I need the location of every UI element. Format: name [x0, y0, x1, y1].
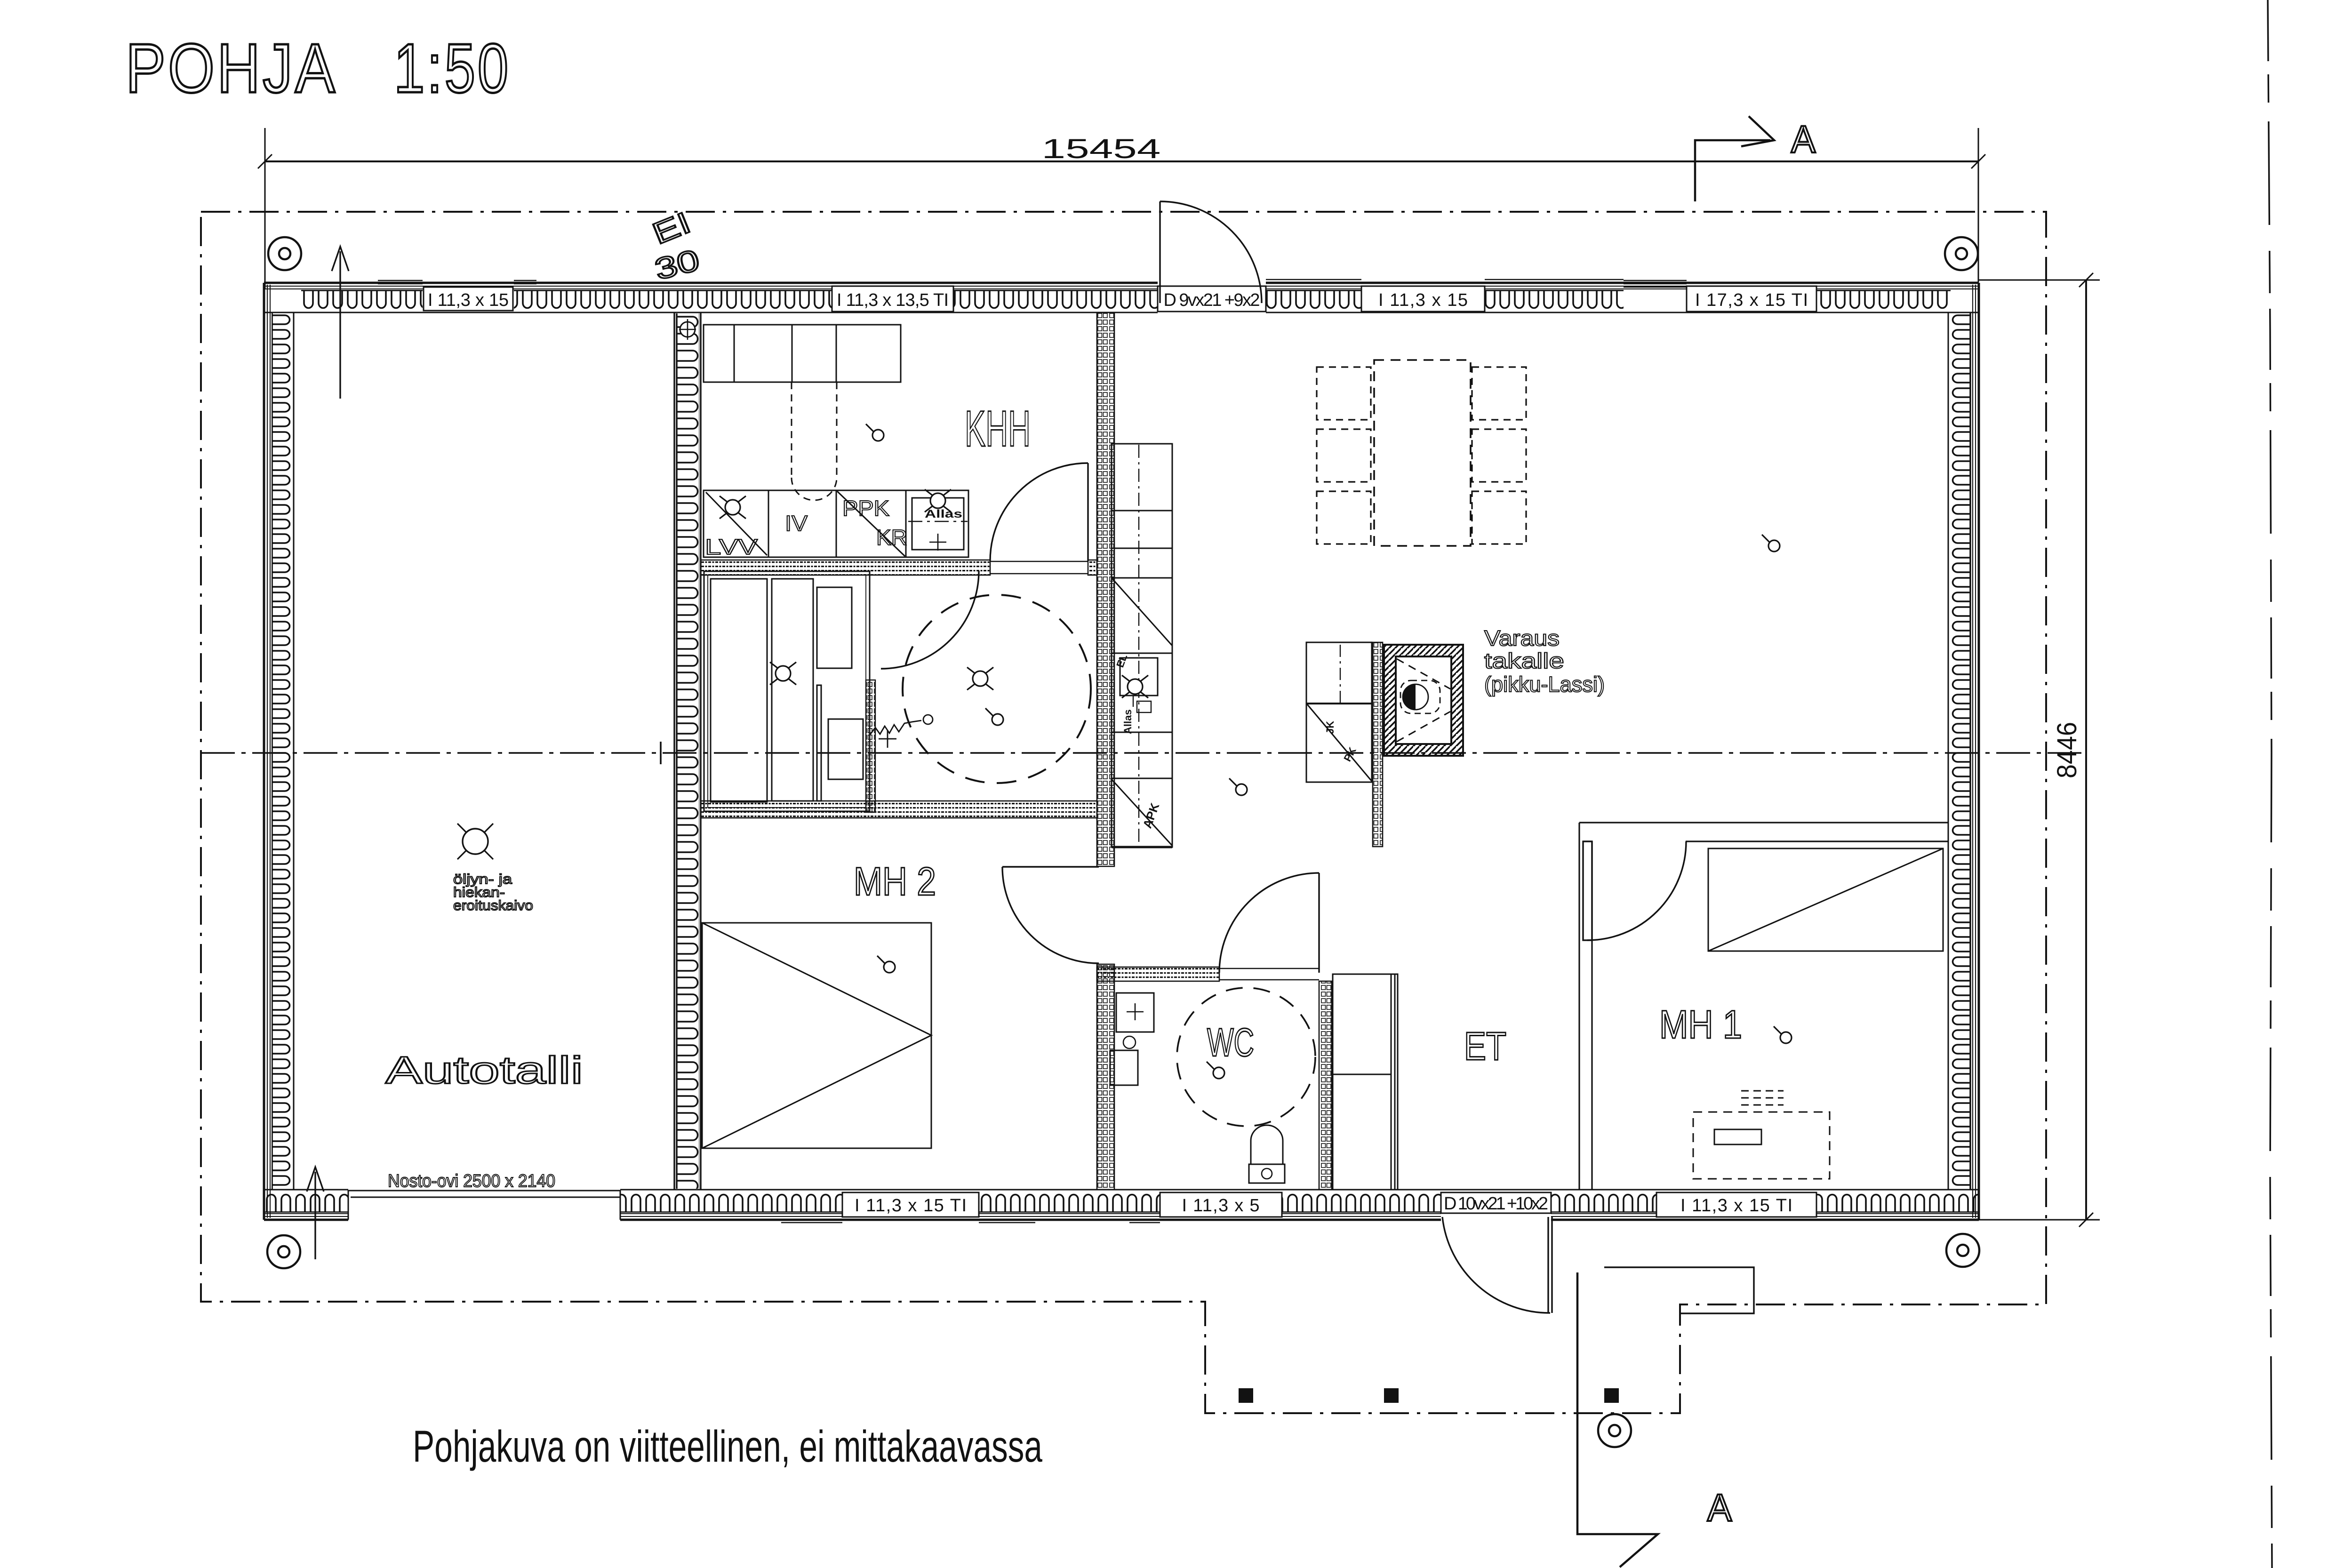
svg-text:LVV: LVV — [705, 535, 758, 559]
svg-text:A: A — [1791, 118, 1816, 161]
svg-text:takalle: takalle — [1484, 648, 1564, 673]
svg-text:(pikku-Lassi): (pikku-Lassi) — [1484, 672, 1605, 696]
svg-text:I 11,3 x 5: I 11,3 x 5 — [1182, 1196, 1260, 1216]
svg-text:I 17,3 x 15 TI: I 17,3 x 15 TI — [1695, 290, 1808, 310]
svg-text:Autotalli: Autotalli — [385, 1049, 583, 1092]
svg-text:WC: WC — [1207, 1020, 1254, 1064]
svg-text:15454: 15454 — [1042, 134, 1161, 164]
svg-text:MH 1: MH 1 — [1659, 1002, 1742, 1047]
svg-text:Allas: Allas — [1122, 709, 1134, 734]
svg-text:I 11,3 x 15 TI: I 11,3 x 15 TI — [855, 1196, 967, 1216]
svg-text:PPK: PPK — [842, 496, 889, 520]
svg-text:Allas: Allas — [925, 508, 962, 520]
svg-text:IV: IV — [785, 511, 808, 536]
svg-text:I 11,3 x 15: I 11,3 x 15 — [1378, 290, 1468, 310]
svg-text:POHJA: POHJA — [126, 30, 337, 107]
svg-text:1:50: 1:50 — [394, 30, 511, 107]
svg-text:ET: ET — [1464, 1024, 1506, 1068]
svg-text:D 10vx21 +10x2: D 10vx21 +10x2 — [1444, 1194, 1548, 1214]
svg-text:8446: 8446 — [2052, 722, 2082, 778]
svg-text:KHH: KHH — [965, 400, 1031, 457]
svg-text:MH 2: MH 2 — [854, 859, 936, 904]
svg-text:D 9vx21 +9x2: D 9vx21 +9x2 — [1164, 290, 1260, 310]
svg-text:I 11,3 x 13,5 TI: I 11,3 x 13,5 TI — [837, 290, 949, 310]
svg-text:eroituskaivo: eroituskaivo — [453, 898, 533, 913]
svg-text:I 11,3 x 15 TI: I 11,3 x 15 TI — [1680, 1196, 1792, 1216]
svg-text:I 11,3 x 15: I 11,3 x 15 — [428, 290, 509, 310]
svg-text:Nosto-ovi 2500 x 2140: Nosto-ovi 2500 x 2140 — [388, 1171, 555, 1191]
svg-text:Pohjakuva on viitteellinen, ei: Pohjakuva on viitteellinen, ei mittakaav… — [413, 1422, 1042, 1472]
svg-text:A: A — [1707, 1487, 1732, 1529]
svg-text:Varaus: Varaus — [1484, 626, 1560, 650]
svg-text:KR: KR — [876, 525, 907, 550]
svg-text:JK: JK — [1324, 721, 1336, 734]
